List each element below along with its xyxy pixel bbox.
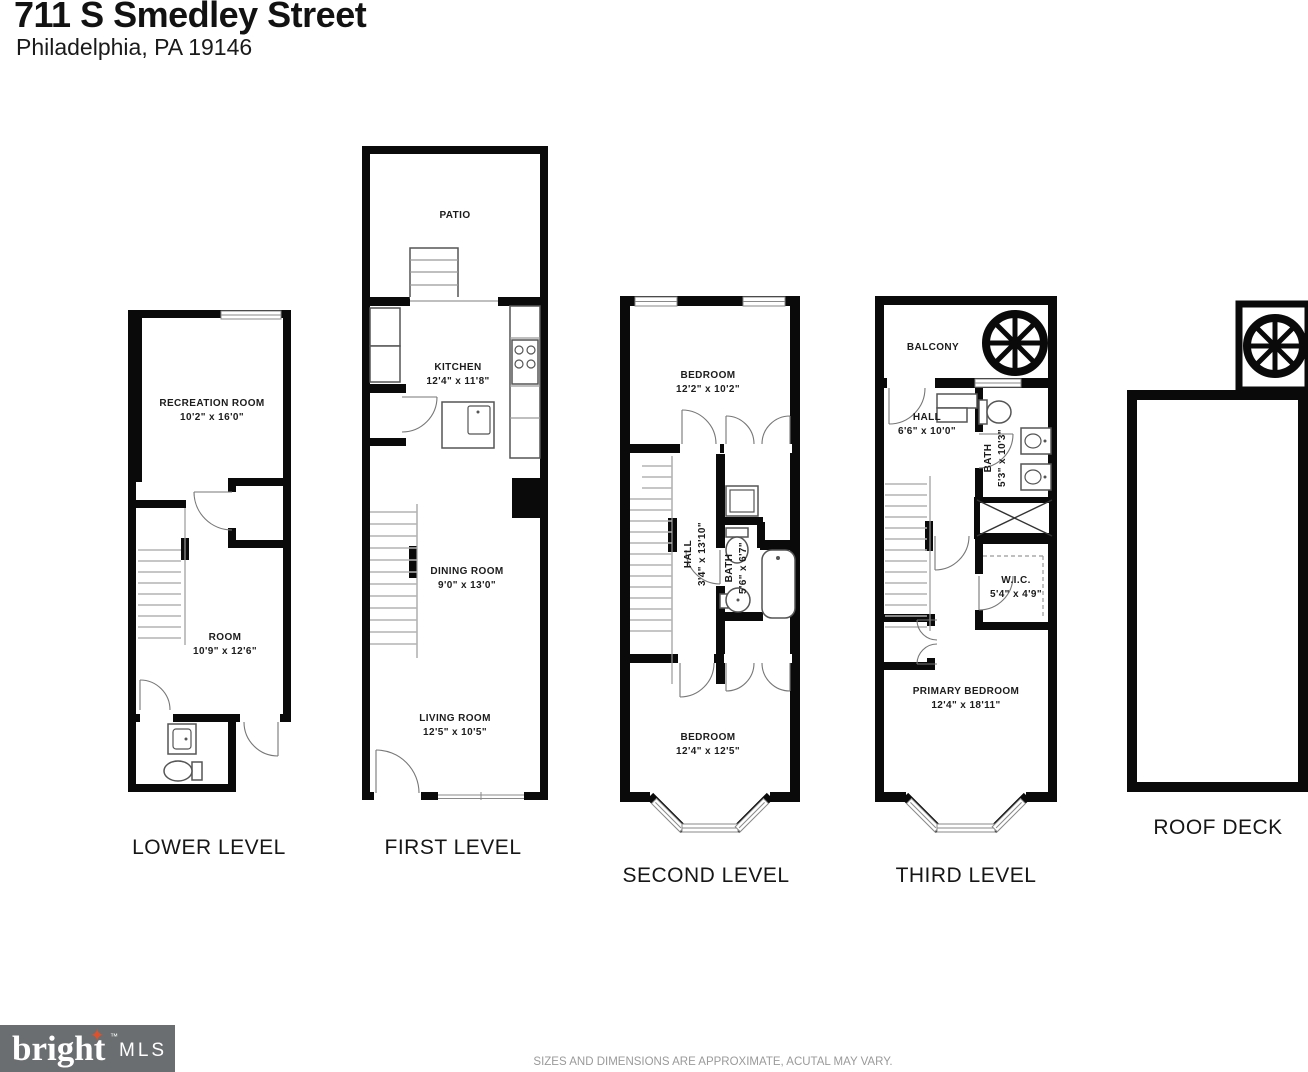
primary-bedroom-dims: 12'4" x 18'11" <box>931 700 1000 711</box>
patio-steps <box>410 248 458 298</box>
bedroom-bottom-label: BEDROOM <box>680 732 735 743</box>
wic-label: W.I.C. <box>1001 575 1031 586</box>
hall-label: HALL <box>683 540 694 568</box>
bathtub-icon <box>762 550 795 618</box>
room-label: ROOM <box>209 632 242 643</box>
third-level-label: THIRD LEVEL <box>896 864 1037 888</box>
living-room-label: LIVING ROOM <box>419 713 491 724</box>
bay-window <box>875 792 1057 832</box>
washer-icon <box>726 486 758 516</box>
bath-label: BATH <box>724 554 735 583</box>
spiral-stair-icon <box>986 314 1044 372</box>
patio-doorway <box>410 297 498 306</box>
hall-dims: 3'4" x 13'10" <box>697 522 708 586</box>
lower-top-window <box>221 311 281 319</box>
bedroom-top-dims: 12'2" x 10'2" <box>676 384 740 395</box>
floorplan-lower-level: RECREATION ROOM 10'2" x 16'0" ROOM 10'9"… <box>128 310 291 792</box>
kitchen-island-sink <box>442 402 494 448</box>
bath-dims: 5'3" x 10'3" <box>997 429 1008 487</box>
shower-icon <box>977 500 1052 536</box>
toilet-icon <box>979 400 1011 424</box>
floorplan-second-level: BEDROOM 12'2" x 10'2" HALL 3'4" x 13'10"… <box>620 296 800 841</box>
balcony-label: BALCONY <box>907 342 959 353</box>
floorplan-roof-deck <box>1127 300 1308 795</box>
lower-level-label: LOWER LEVEL <box>132 836 286 860</box>
roof-deck-label: ROOF DECK <box>1153 816 1282 840</box>
logo-trademark: ™ <box>110 1032 118 1041</box>
bath-label: BATH <box>983 444 994 473</box>
room-dims: 10'9" x 12'6" <box>193 646 257 657</box>
patio-label: PATIO <box>439 210 470 221</box>
hall-dims: 6'6" x 10'0" <box>898 426 956 437</box>
kitchen-counter-left <box>370 308 400 382</box>
bedroom-top-label: BEDROOM <box>680 370 735 381</box>
primary-bedroom-label: PRIMARY BEDROOM <box>913 686 1020 697</box>
wic-dims: 5'4" x 4'9" <box>990 589 1042 600</box>
page-subtitle: Philadelphia, PA 19146 <box>16 34 252 61</box>
logo-mls-text: MLS <box>119 1040 167 1062</box>
disclaimer-text: SIZES AND DIMENSIONS ARE APPROXIMATE, AC… <box>533 1056 892 1068</box>
dining-room-label: DINING ROOM <box>430 566 503 577</box>
living-room-window <box>438 792 524 800</box>
bath-dims: 5'6" x 6'7" <box>738 542 749 594</box>
bay-window <box>620 792 800 832</box>
spiral-stair-icon <box>1247 318 1303 374</box>
bath-window <box>975 379 1021 387</box>
floorplan-first-level: PATIO KITCHEN 12'4" x 11'8" DINING ROOM … <box>362 146 548 800</box>
entry-door <box>240 714 280 756</box>
recreation-room-label: RECREATION ROOM <box>159 398 264 409</box>
page-title: 711 S Smedley Street <box>14 0 366 36</box>
floorplan-third-level: BALCONY HALL 6'6" x 10'0" BATH 5'3" x 10… <box>875 296 1057 841</box>
first-walls <box>362 146 548 800</box>
floorplan-page: 711 S Smedley Street Philadelphia, PA 19… <box>0 0 1308 1072</box>
hall-label: HALL <box>913 412 941 423</box>
stove-icon <box>512 340 538 384</box>
kitchen-dims: 12'4" x 11'8" <box>426 376 489 387</box>
first-level-label: FIRST LEVEL <box>385 836 522 860</box>
bedroom-bottom-dims: 12'4" x 12'5" <box>676 746 740 757</box>
toilet-icon <box>164 761 202 781</box>
kitchen-label: KITCHEN <box>434 362 481 373</box>
sink-icon <box>168 724 196 754</box>
second-level-label: SECOND LEVEL <box>622 864 789 888</box>
bright-mls-logo: bright ✦ ™ MLS <box>0 1025 175 1072</box>
living-room-dims: 12'5" x 10'5" <box>423 727 487 738</box>
roof-deck-walls <box>1127 390 1308 792</box>
dining-room-dims: 9'0" x 13'0" <box>438 580 496 591</box>
logo-star-icon: ✦ <box>90 1026 104 1046</box>
recreation-room-dims: 10'2" x 16'0" <box>180 412 244 423</box>
